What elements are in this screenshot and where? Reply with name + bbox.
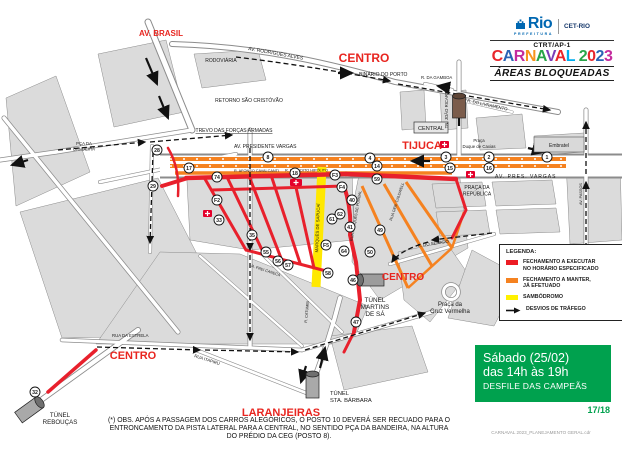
svg-text:41: 41: [347, 225, 353, 231]
tunel-sta-barbara-label-2: STA. BÁRBARA: [330, 397, 372, 404]
tunnel-joao-ricardo-icon: [453, 93, 466, 118]
post-marker-64: 64: [339, 246, 349, 256]
svg-text:F2: F2: [214, 198, 220, 204]
praca-republica-label-2: REPÚBLICA: [463, 191, 492, 198]
post-marker-28: 28: [152, 145, 162, 155]
svg-text:62: 62: [337, 212, 343, 218]
post-marker-F3: F3: [330, 170, 340, 180]
pca-bandeira-label-1: PÇA DA: [76, 141, 92, 146]
post-marker-14: 14: [372, 161, 382, 171]
district-av-brasil: AV. BRASIL: [139, 29, 183, 38]
post-marker-59: 59: [372, 174, 382, 184]
svg-text:64: 64: [341, 249, 347, 255]
retorno-label: RETORNO SÃO CRISTÓVÃO: [215, 97, 283, 104]
legend-label-line: FECHAMENTO A EXECUTAR: [523, 259, 599, 266]
tunel-martins-label-1: TÚNEL: [365, 295, 386, 304]
legend-item-detours: DESVIOS DE TRÁFEGO: [506, 306, 622, 314]
street-gamboa: R. DA GAMBOA: [421, 75, 452, 80]
district-centro-leste: CENTRO: [382, 272, 424, 283]
legend-item-orange-closure: FECHAMENTO A MANTER, JÁ EFETUADO: [506, 277, 622, 290]
legend-label-line: SAMBÓDROMO: [523, 294, 563, 301]
central-label: CENTRAL: [418, 126, 444, 132]
legend-label-line: NO HORÁRIO ESPECIFICADO: [523, 266, 599, 273]
praca-republica-label-1: PRAÇA DA: [464, 185, 490, 191]
schedule-date: Sábado (25/02): [483, 351, 611, 365]
svg-text:74: 74: [214, 175, 220, 181]
prefeitura-label: PREFEITURA: [514, 33, 553, 37]
svg-text:28: 28: [154, 148, 160, 154]
central-station-box: CENTRAL: [414, 122, 448, 133]
svg-text:15: 15: [447, 166, 453, 172]
svg-text:F3: F3: [332, 173, 338, 179]
svg-text:58: 58: [325, 271, 331, 277]
svg-text:29: 29: [150, 184, 156, 190]
post-marker-47: 47: [351, 317, 361, 327]
post-marker-50: 50: [365, 247, 375, 257]
post-marker-3: 3: [441, 152, 451, 162]
svg-text:57: 57: [285, 263, 291, 269]
district-centro-sul: CENTRO: [110, 350, 157, 362]
traffic-detour-arrow-icon: [506, 307, 521, 314]
post-marker-16: 16: [484, 163, 494, 173]
svg-text:33: 33: [216, 218, 222, 224]
svg-text:F4: F4: [339, 185, 345, 191]
footnote-line-1: (*) OBS. APÓS A PASSAGEM DOS CARROS ALEG…: [59, 417, 499, 425]
file-label: CARNAVAL 2023_PLANEJAMENTO GERAL.cdr: [468, 430, 614, 435]
header-block: Rio PREFEITURA CET-RIO CTRT/AP-1 CARNAVA…: [490, 16, 614, 81]
svg-text:35: 35: [249, 233, 255, 239]
carnaval-title: CARNAVAL 2023: [490, 49, 614, 66]
street-av-passos: AV. PASSOS: [579, 183, 583, 205]
post-marker-56: 56: [273, 256, 283, 266]
post-marker-F4: F4: [337, 182, 347, 192]
post-marker-46: 46: [348, 275, 358, 285]
post-marker-18: 18: [290, 168, 300, 178]
svg-text:16: 16: [486, 166, 492, 172]
street-estrela: RUA DA ESTRELA: [112, 333, 149, 338]
post-marker-F5: F5: [321, 240, 331, 250]
city-blocks-layer: [6, 40, 622, 390]
trevo-label: TREVO DAS FORÇAS ARMADAS: [196, 128, 274, 134]
post-marker-35: 35: [247, 230, 257, 240]
post-marker-15: 15: [445, 163, 455, 173]
embratel-box: Embratel: [534, 137, 584, 152]
post-marker-1: 1: [542, 152, 552, 162]
footnote: (*) OBS. APÓS A PASSAGEM DOS CARROS ALEG…: [59, 417, 499, 441]
legend-label-line: JÁ EFETUADO: [523, 283, 591, 290]
post-marker-29: 29: [148, 181, 158, 191]
carnaval-2023-blockade-map-page: CENTRAL Embratel AV. BRASIL CENTRO TIJUC…: [0, 0, 622, 451]
praca-cruz-label-1: Praça da: [438, 302, 463, 308]
page-number: 17/18: [545, 405, 610, 415]
district-tijuca: TIJUCA: [402, 140, 442, 152]
embratel-label: Embratel: [549, 143, 569, 149]
areas-bloqueadas-subtitle: ÁREAS BLOQUEADAS: [490, 66, 614, 81]
sambodromo-swatch: [506, 295, 518, 300]
post-marker-58: 58: [323, 268, 333, 278]
post-marker-41: 41: [345, 222, 355, 232]
district-centro-norte: CENTRO: [339, 51, 390, 65]
post-marker-33: 33: [214, 215, 224, 225]
street-pres-vargas: AV. PRESIDENTE VARGAS: [234, 144, 297, 150]
svg-text:61: 61: [329, 217, 335, 223]
prefeitura-crest-icon: [515, 19, 526, 30]
post-marker-F2: F2: [212, 195, 222, 205]
svg-text:14: 14: [374, 164, 380, 170]
post-marker-4: 4: [365, 153, 375, 163]
tn-joao-ricardo-label: TN. JOÃO RICARDO: [444, 87, 449, 128]
rio-logo-text: Rio: [528, 16, 552, 32]
binario-label: BINÁRIO DO PORTO: [359, 71, 408, 78]
tunel-martins-label-3: DE SÁ: [365, 309, 385, 318]
tunnel-martins-de-sa-icon: [357, 274, 385, 286]
legend-title: LEGENDA:: [506, 249, 622, 255]
street-pres-vargas-right: AV. PRES. VARGAS: [495, 174, 556, 180]
tunel-martins-label-2: MARTINS: [361, 304, 390, 311]
orange-closure-swatch: [506, 278, 518, 283]
svg-text:1: 1: [546, 155, 549, 161]
schedule-box: Sábado (25/02) das 14h às 19h DESFILE DA…: [475, 345, 611, 402]
svg-text:59: 59: [374, 177, 380, 183]
svg-text:56: 56: [275, 259, 281, 265]
red-closure-swatch: [506, 260, 518, 265]
pca-bandeira-label-2: BANDEIRA: [73, 147, 95, 152]
svg-text:50: 50: [367, 250, 373, 256]
post-marker-32: 32: [30, 387, 40, 397]
tunnel-sta-barbara-icon: [306, 371, 319, 398]
prefeitura-rio-logo: Rio PREFEITURA: [514, 16, 553, 37]
schedule-time: das 14h às 19h: [483, 365, 611, 379]
svg-text:55: 55: [263, 250, 269, 256]
svg-text:17: 17: [186, 166, 192, 172]
svg-text:4: 4: [369, 156, 372, 162]
post-marker-8: 8: [263, 152, 273, 162]
post-marker-57: 57: [283, 260, 293, 270]
praca-cruz-label-2: Cruz Vermelha: [430, 309, 470, 315]
rodoviaria-label: RODOVIÁRIA: [205, 57, 237, 64]
legend-item-sambodromo: SAMBÓDROMO: [506, 294, 622, 301]
street-afonso-cavalcanti: R. AFONSO CAVALCANTI: [234, 169, 279, 173]
svg-text:2: 2: [488, 155, 491, 161]
post-marker-62: 62: [335, 209, 345, 219]
metro-station-icon: [466, 171, 475, 178]
svg-text:46: 46: [350, 278, 356, 284]
svg-text:47: 47: [353, 320, 359, 326]
svg-text:40: 40: [349, 198, 355, 204]
tunnel-reboucas-icon: [15, 395, 47, 423]
logo-divider: [558, 19, 559, 34]
legend-label-line: DESVIOS DE TRÁFEGO: [526, 306, 586, 313]
post-marker-2: 2: [484, 152, 494, 162]
post-marker-74: 74: [212, 172, 222, 182]
metro-station-icon: [290, 179, 302, 186]
post-marker-49: 49: [375, 225, 385, 235]
svg-text:8: 8: [267, 155, 270, 161]
praca-duque-label-2: Duque de Caxias: [463, 144, 496, 149]
legend-item-red-closure: FECHAMENTO A EXECUTAR NO HORÁRIO ESPECIF…: [506, 259, 622, 272]
legend-box: LEGENDA: FECHAMENTO A EXECUTAR NO HORÁRI…: [499, 244, 622, 321]
svg-text:3: 3: [445, 155, 448, 161]
cet-rio-label: CET-RIO: [564, 23, 590, 30]
svg-text:32: 32: [32, 390, 38, 396]
svg-text:49: 49: [377, 228, 383, 234]
post-marker-40: 40: [347, 195, 357, 205]
svg-text:18: 18: [292, 171, 298, 177]
logo-row: Rio PREFEITURA CET-RIO: [490, 16, 614, 37]
praca-duque-label-1: Praça: [473, 138, 485, 143]
post-marker-17: 17: [184, 163, 194, 173]
post-marker-55: 55: [261, 247, 271, 257]
footnote-line-3: DO PRÉDIO DA CEG (POSTO 8).: [59, 433, 499, 441]
metro-station-icon: [203, 210, 212, 217]
tunel-sta-barbara-label-1: TÚNEL: [330, 390, 350, 397]
schedule-event: DESFILE DAS CAMPEÃS: [483, 381, 611, 391]
svg-text:F5: F5: [323, 243, 329, 249]
